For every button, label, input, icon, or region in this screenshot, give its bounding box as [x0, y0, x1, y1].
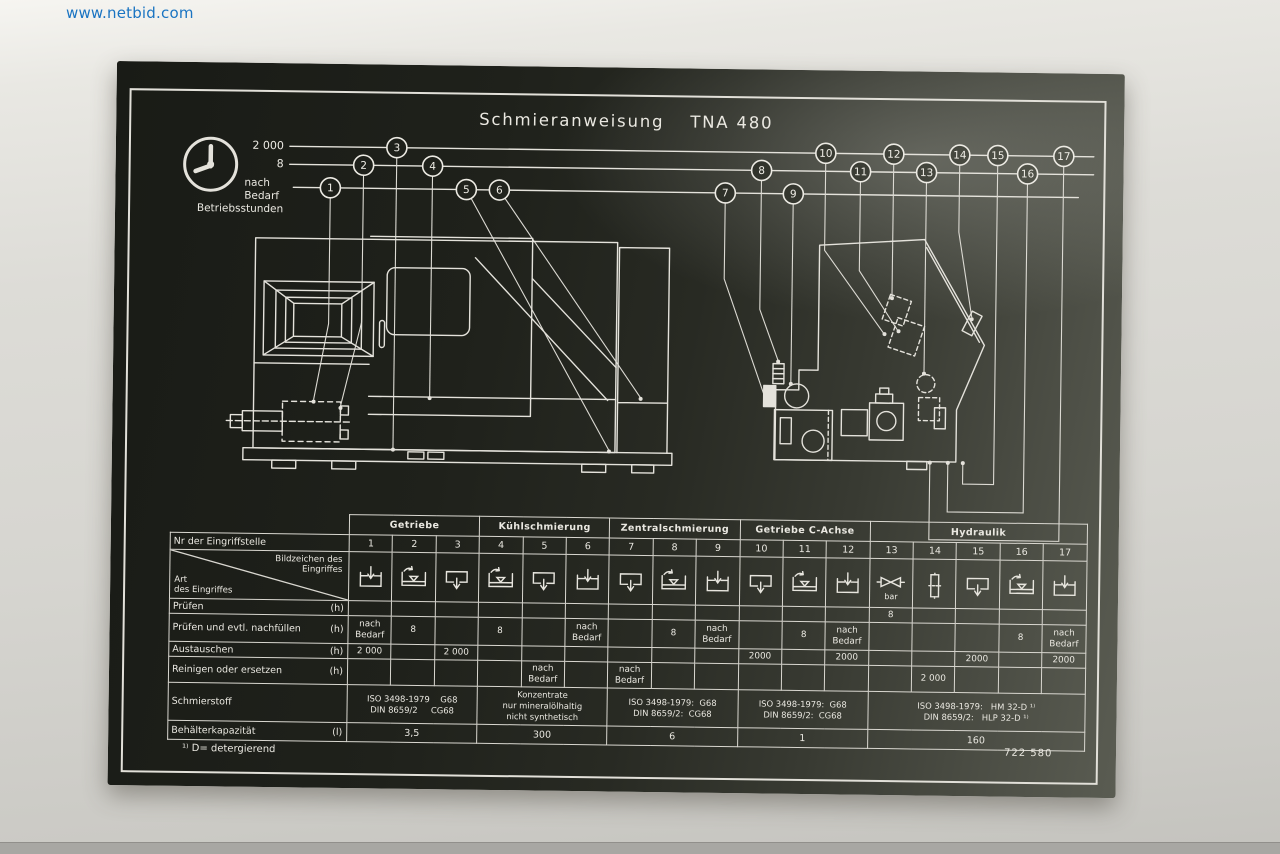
nr-cell: 9: [696, 539, 740, 557]
value-cell: nach Bedarf: [565, 618, 609, 647]
maintenance-table: Getriebe Kühlschmierung Zentralschmierun…: [167, 512, 1088, 752]
value-cell: [956, 609, 1000, 625]
callout-15: 15: [988, 145, 1008, 165]
photo-background: www.netbid.com SchmieranweisungTNA 480 2…: [0, 0, 1280, 854]
svg-text:5: 5: [463, 184, 470, 196]
value-cell: [609, 604, 653, 620]
nr-cell: 15: [957, 543, 1001, 561]
value-cell: [999, 609, 1043, 625]
value-cell: [695, 605, 739, 621]
symbol-fill-icon: [348, 552, 392, 602]
plate-part-number: 722 580: [1004, 748, 1052, 760]
svg-text:16: 16: [1021, 168, 1035, 180]
lathe-side-view-drawing: [763, 238, 986, 471]
svg-text:11: 11: [854, 166, 868, 178]
group-hydraulik: Hydraulik: [870, 521, 1087, 544]
svg-text:9: 9: [790, 188, 797, 200]
svg-text:17: 17: [1057, 151, 1071, 163]
value-cell: [392, 601, 436, 617]
value-cell: [998, 667, 1042, 694]
value-cell: [782, 606, 826, 622]
svg-text:2: 2: [360, 160, 367, 172]
value-cell: [868, 665, 912, 692]
row-label: Schmierstoff: [168, 682, 347, 722]
svg-text:15: 15: [991, 150, 1005, 162]
callout-6: 6: [489, 180, 509, 200]
callout-9: 9: [783, 184, 803, 204]
value-cell: [1042, 610, 1086, 626]
svg-text:8: 8: [758, 165, 765, 177]
nr-cell: 3: [436, 536, 480, 554]
lubrication-plate: SchmieranweisungTNA 480 2 000 8 nach Bed…: [108, 61, 1125, 798]
nr-cell: 2: [392, 535, 436, 553]
value-cell: 2000: [1042, 653, 1086, 669]
capacity-cell: 300: [477, 724, 607, 745]
value-cell: [521, 618, 565, 647]
capacity-cell: 3,5: [347, 723, 477, 744]
svg-text:3: 3: [393, 142, 400, 154]
capacity-cell: 1: [737, 728, 867, 749]
nr-cell: 12: [826, 541, 870, 559]
value-cell: nach Bedarf: [521, 661, 565, 688]
svg-text:10: 10: [819, 148, 833, 160]
value-cell: [522, 603, 566, 619]
value-cell: 8: [652, 620, 696, 649]
value-cell: [391, 644, 435, 660]
value-cell: [826, 607, 870, 623]
value-cell: [434, 660, 478, 687]
value-cell: nach Bedarf: [695, 620, 739, 649]
callout-16: 16: [1017, 164, 1037, 184]
svg-text:1: 1: [327, 182, 334, 194]
value-cell: [348, 601, 392, 617]
value-cell: [738, 621, 782, 650]
callout-12: 12: [884, 144, 904, 164]
value-cell: [955, 624, 999, 653]
symbol-fill-icon: [826, 558, 870, 608]
callout-14: 14: [950, 145, 970, 165]
value-cell: nach Bedarf: [1042, 625, 1086, 654]
symbol-corner-cell: Bildzeichen desEingriffes Artdes Eingrif…: [169, 549, 349, 600]
value-cell: [955, 667, 999, 694]
value-cell: [608, 647, 652, 663]
value-cell: nach Bedarf: [348, 616, 392, 645]
group-getriebe: Getriebe: [349, 515, 479, 537]
value-cell: 2000: [955, 652, 999, 668]
symbol-level-icon: [999, 560, 1043, 610]
value-cell: [912, 651, 956, 667]
lubricant-spec: ISO 3498-1979 G68 DIN 8659/2 CG68: [347, 685, 478, 725]
symbol-fill-icon: [696, 556, 740, 606]
lathe-front-view-drawing: [226, 234, 675, 473]
value-cell: [738, 664, 782, 691]
value-cell: nach Bedarf: [825, 622, 869, 651]
clock-icon: [184, 138, 237, 191]
nr-cell: 11: [783, 540, 827, 558]
value-cell: [478, 602, 522, 618]
symbol-drain-icon: [956, 560, 1000, 610]
group-zentralschmierung: Zentralschmierung: [610, 518, 740, 540]
symbol-drain-icon: [739, 557, 783, 607]
group-kuehlschmierung: Kühlschmierung: [479, 516, 609, 538]
svg-text:13: 13: [920, 167, 934, 179]
callout-circles: 1 2 3 4 5 6 7 8 9 10 11 12 13 14 15 16 1…: [320, 137, 1074, 208]
value-cell: 8: [478, 617, 522, 646]
value-cell: [1042, 668, 1086, 695]
value-cell: [694, 663, 738, 690]
interval-lines: [289, 146, 1093, 198]
callout-1: 1: [320, 178, 340, 198]
lubricant-spec: Konzentrate nur mineralölhaltig nicht sy…: [477, 686, 608, 726]
detergent-footnote: ¹⁾ D= detergierend: [182, 743, 276, 755]
value-cell: [478, 645, 522, 661]
value-cell: 2 000: [434, 645, 478, 661]
symbol-level-icon: [392, 552, 436, 602]
value-cell: 8: [999, 624, 1043, 653]
symbol-drain-icon: [435, 553, 479, 603]
nr-cell: 13: [870, 541, 914, 559]
symbol-fill-icon: [1043, 561, 1087, 611]
symbol-level-icon: [479, 553, 523, 603]
value-cell: [651, 648, 695, 664]
svg-text:4: 4: [429, 161, 436, 173]
value-cell: [695, 648, 739, 664]
value-cell: [651, 663, 695, 690]
callout-5: 5: [456, 179, 476, 199]
photo-bottom-edge: [0, 842, 1280, 854]
value-cell: [868, 650, 912, 666]
nr-cell: 1: [349, 535, 393, 553]
nr-cell: 6: [566, 537, 610, 555]
callout-2: 2: [354, 155, 374, 175]
value-cell: [999, 652, 1043, 668]
value-cell: [564, 661, 608, 688]
callout-10: 10: [816, 143, 836, 163]
value-cell: 2000: [825, 650, 869, 666]
callout-8: 8: [751, 160, 771, 180]
row-label: Reinigen oder ersetzen(h): [168, 656, 347, 684]
callout-17: 17: [1054, 146, 1074, 166]
value-cell: [435, 617, 479, 646]
value-cell: [521, 646, 565, 662]
lubricant-spec: ISO 3498-1979: G68 DIN 8659/2: CG68: [737, 690, 868, 730]
callout-7: 7: [715, 183, 735, 203]
symbol-drain-icon: [522, 554, 566, 604]
svg-text:14: 14: [953, 149, 967, 161]
lubricant-spec: ISO 3498-1979: HM 32-D ¹⁾ DIN 8659/2: HL…: [868, 691, 1085, 732]
group-getriebe-c-achse: Getriebe C-Achse: [740, 520, 870, 542]
nr-cell: 14: [913, 542, 957, 560]
nr-cell: 8: [653, 539, 697, 557]
row-label: Behälterkapazität(l): [168, 720, 347, 741]
value-cell: 8: [869, 607, 913, 623]
watermark-url: www.netbid.com: [66, 4, 194, 22]
nr-cell: 17: [1043, 544, 1087, 562]
value-cell: [608, 619, 652, 648]
value-cell: [782, 649, 826, 665]
value-cell: [435, 602, 479, 618]
nr-cell: 5: [523, 537, 567, 555]
value-cell: [652, 605, 696, 621]
lubricant-spec: ISO 3498-1979: G68 DIN 8659/2: CG68: [607, 688, 738, 728]
symbol-level-icon: [652, 556, 696, 606]
capacity-cell: 6: [607, 726, 737, 747]
value-cell: 2 000: [911, 666, 955, 693]
callout-3: 3: [387, 138, 407, 158]
value-cell: 8: [782, 621, 826, 650]
svg-text:6: 6: [496, 184, 503, 196]
callout-11: 11: [850, 162, 870, 182]
svg-text:12: 12: [887, 149, 901, 161]
value-cell: [391, 659, 435, 686]
nr-cell: 7: [609, 538, 653, 556]
value-cell: [781, 664, 825, 691]
svg-text:7: 7: [722, 187, 729, 199]
symbol-filter-icon: [912, 559, 956, 609]
nr-cell: 10: [740, 540, 784, 558]
value-cell: [912, 608, 956, 624]
callout-13: 13: [916, 162, 936, 182]
callout-leader-lines: [310, 147, 1064, 542]
row-label: Prüfen und evtl. nachfüllen(h): [169, 613, 348, 643]
value-cell: [565, 646, 609, 662]
value-cell: [478, 660, 522, 687]
group-header-spacer: [170, 512, 349, 534]
symbol-pressure-gauge-icon: bar: [869, 558, 913, 608]
symbol-fill-icon: [565, 554, 609, 604]
value-cell: [565, 603, 609, 619]
value-cell: [347, 659, 391, 686]
value-cell: nach Bedarf: [608, 662, 652, 689]
symbol-drain-icon: [609, 555, 653, 605]
value-cell: 2000: [738, 649, 782, 665]
value-cell: [869, 622, 913, 651]
value-cell: 8: [391, 616, 435, 645]
symbol-level-icon: [782, 557, 826, 607]
value-cell: [912, 623, 956, 652]
nr-cell: 4: [479, 536, 523, 554]
value-cell: 2 000: [348, 644, 392, 660]
value-cell: [825, 665, 869, 692]
callout-4: 4: [423, 156, 443, 176]
value-cell: [739, 606, 783, 622]
nr-cell: 16: [1000, 543, 1044, 561]
